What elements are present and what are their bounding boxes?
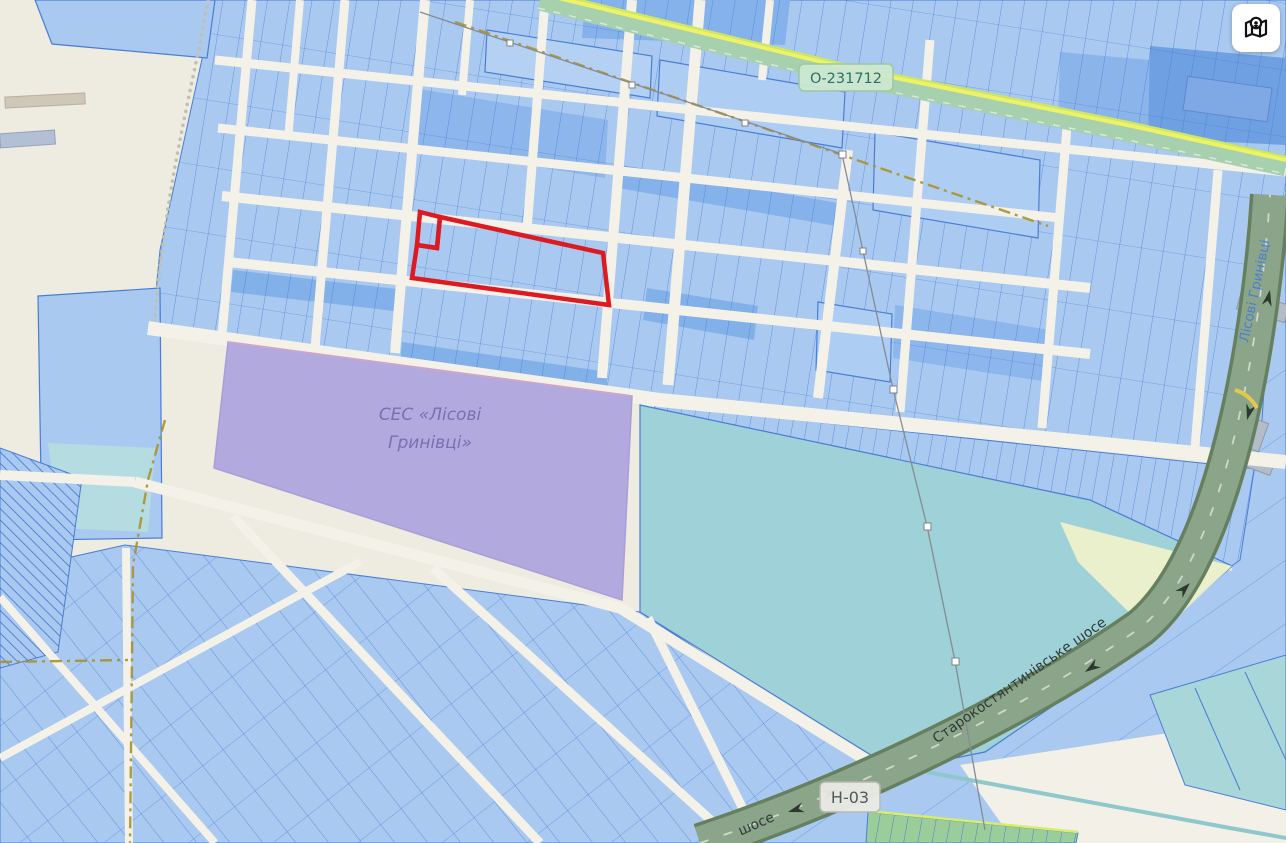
map-canvas[interactable]: СЕС «Лісові Гринівці»: [0, 0, 1286, 843]
svg-text:Н-03: Н-03: [831, 788, 869, 807]
regional-road-badge: О-231712: [799, 64, 893, 91]
map-layers-button[interactable]: [1232, 4, 1280, 52]
national-road-badge: Н-03: [820, 782, 880, 812]
solar-station-label-line2: Гринівці»: [388, 433, 472, 453]
map-stage: СЕС «Лісові Гринівці»: [0, 0, 1286, 843]
solar-station-label-line1: СЕС «Лісові: [379, 405, 482, 425]
svg-text:О-231712: О-231712: [810, 71, 882, 87]
map-location-icon: [1242, 14, 1270, 42]
